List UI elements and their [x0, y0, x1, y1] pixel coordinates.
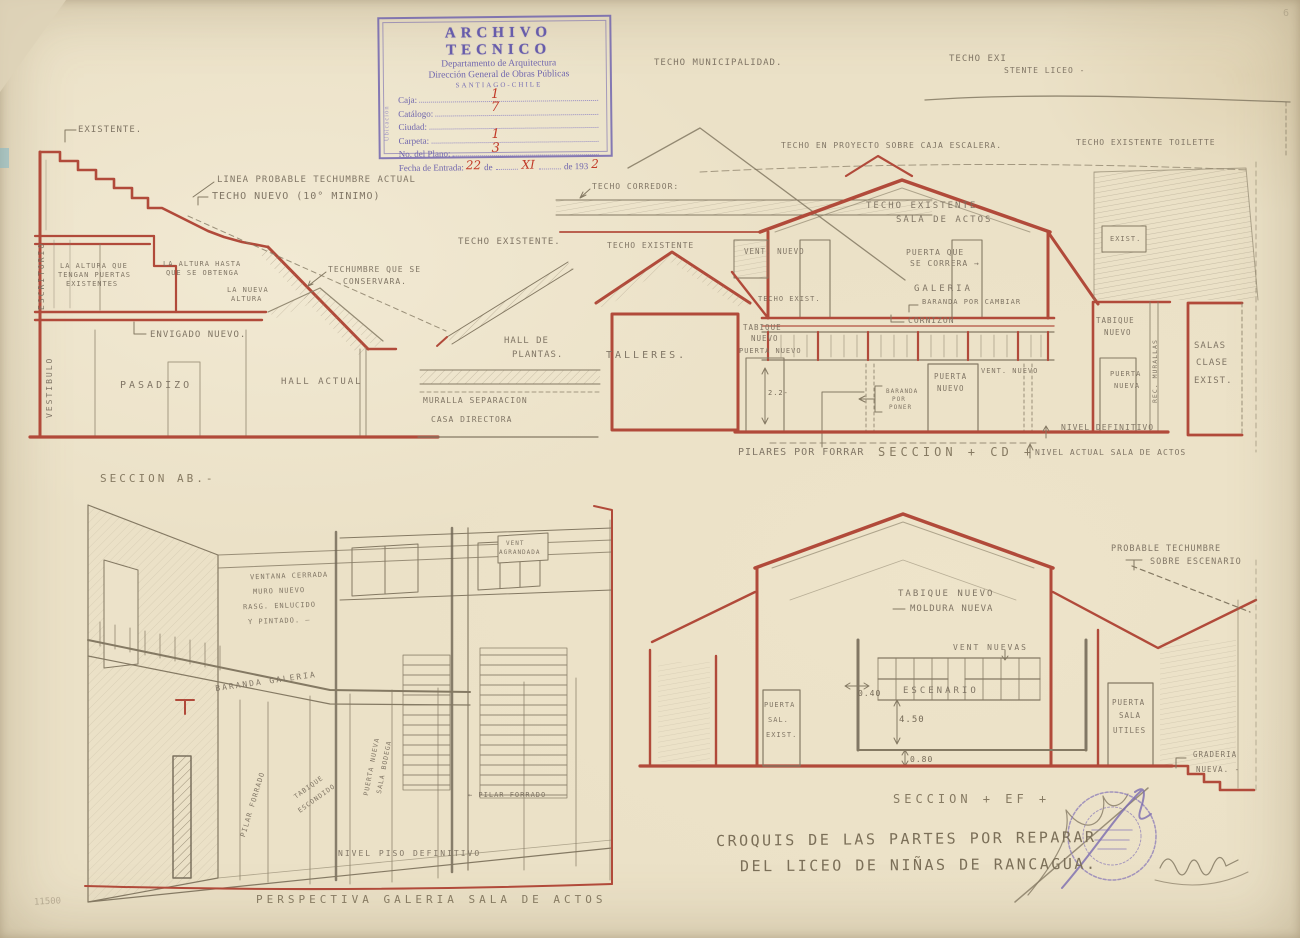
label-muralla-1: MURALLA SEPARACION: [423, 397, 528, 405]
label-techo-existente-der: TECHO EXISTENTE: [607, 242, 694, 250]
fecha-day-handwritten: 22: [466, 158, 481, 172]
field-label: Carpeta:: [399, 136, 430, 146]
field-label: Ciudad:: [398, 122, 427, 132]
label-vent-nuevas: VENT NUEVAS: [953, 644, 1028, 652]
label-graderia-2: NUEVA. -: [1196, 766, 1240, 774]
caption-seccion-ab: SECCION AB.-: [100, 473, 215, 484]
label-moldura-nueva: MOLDURA NUEVA: [910, 605, 993, 614]
corner-sheet-mark: 6: [1283, 8, 1289, 19]
dim-450: 4.50: [899, 716, 925, 725]
label-techo-exist: TECHO EXIST.: [758, 296, 821, 303]
archive-stamp-inner-border: ARCHIVO TECNICO Departamento de Arquitec…: [382, 20, 607, 154]
label-tabique-nuevo-izq-2: NUEVO: [751, 335, 779, 343]
label-puerta-utiles-2: SALA: [1119, 712, 1141, 720]
label-baranda-poner-3: PONER: [889, 405, 912, 411]
label-hall-plantas-2: PLANTAS.: [512, 351, 563, 360]
label-salas-clase-1: SALAS: [1194, 342, 1226, 351]
field-label: No. del Plano:: [399, 149, 451, 160]
scanned-drawing-sheet: ARCHIVO TECNICO Departamento de Arquitec…: [0, 0, 1300, 938]
label-altura-puertas-1: LA ALTURA QUE: [60, 263, 128, 270]
label-techo-corredor: TECHO CORREDOR:: [592, 183, 679, 191]
label-baranda-cambiar: BARANDA POR CAMBIAR: [922, 299, 1021, 306]
label-techo-municipalidad: TECHO MUNICIPALIDAD.: [654, 59, 782, 68]
dim-puerta-nueva: 2.2-: [768, 390, 789, 397]
field-label: Fecha de Entrada:: [399, 162, 464, 173]
stamp-title: ARCHIVO TECNICO: [397, 24, 599, 60]
field-value-handwritten: 3: [491, 141, 499, 156]
label-puerta-nueva-der-1: PUERTA: [1110, 371, 1141, 378]
label-vent-agrandada-1: VENT: [506, 541, 524, 547]
label-hall-plantas-1: HALL DE: [504, 337, 549, 346]
label-galeria: GALERIA: [914, 285, 973, 294]
dotted-leader: [496, 169, 518, 170]
dim-080: 0.80: [910, 756, 933, 764]
label-vent-agrandada-2: AGRANDADA: [499, 550, 541, 556]
label-techo-existente-liceo-1: TECHO EXI: [949, 55, 1007, 64]
label-techo-sala-actos-1: TECHO EXISTENTE: [866, 202, 977, 211]
field-value-handwritten: 7: [491, 100, 499, 115]
label-hall-actual: HALL ACTUAL: [281, 378, 363, 387]
caption-seccion-ef: SECCION + EF +: [893, 793, 1050, 805]
label-existente: EXISTENTE.: [78, 126, 142, 135]
label-puerta-sal-1: PUERTA: [764, 702, 795, 709]
label-cornizon: CORNIZON: [908, 317, 955, 325]
label-puerta-sal-2: SAL.: [768, 717, 789, 724]
stamp-field-fecha: Fecha de Entrada: 22 de XI de 193 2: [399, 157, 601, 173]
margin-note: 11500: [34, 896, 62, 907]
label-muralla-2: CASA DIRECTORA: [431, 416, 512, 424]
label-techo-sala-actos-2: SALA DE ACTOS: [896, 216, 992, 225]
label-puerta-nueva-centro-2: NUEVO: [937, 385, 965, 393]
label-talleres: TALLERES.: [606, 351, 687, 361]
section-ef-drawing: [640, 514, 1256, 790]
caption-perspectiva: PERSPECTIVA GALERIA SALA DE ACTOS: [256, 894, 607, 905]
label-rec-murallas: REC. MURALLAS: [1152, 339, 1159, 403]
label-puerta-correra-2: SE CORRERA →: [910, 260, 980, 268]
label-techo-proyecto: TECHO EN PROYECTO SOBRE CAJA ESCALERA.: [781, 142, 1002, 150]
label-techumbre-conserva-2: CONSERVARA.: [343, 278, 407, 286]
label-techo-toilette: TECHO EXISTENTE TOILETTE: [1076, 139, 1216, 147]
label-baranda-poner-2: POR: [892, 397, 906, 403]
label-techo-existente-liceo-2: STENTE LICEO -: [1004, 67, 1085, 75]
label-puerta-nueva-centro-1: PUERTA: [934, 373, 967, 381]
label-nivel-actual: NIVEL ACTUAL SALA DE ACTOS: [1035, 449, 1186, 457]
field-label: Catálogo:: [398, 108, 433, 118]
dim-040: 0.40: [858, 690, 881, 698]
archive-stamp: ARCHIVO TECNICO Departamento de Arquitec…: [377, 15, 612, 159]
label-tabique-nuevo-ef: TABIQUE NUEVO: [898, 590, 994, 599]
dotted-leader: [539, 168, 561, 169]
perspective-drawing: [85, 505, 612, 902]
fecha-de-printed: de: [484, 162, 493, 172]
label-puerta-correra-1: PUERTA QUE: [906, 249, 964, 257]
label-pilares-forrar: PILARES POR FORRAR: [738, 448, 864, 458]
stamp-side-vertical-text: Ubicación: [383, 105, 390, 141]
label-puerta-sal-3: EXIST.: [766, 732, 797, 739]
label-tabique-nuevo-der-2: NUEVO: [1104, 329, 1132, 337]
label-baranda-poner-1: BARANDA: [886, 389, 918, 395]
label-exist-box: EXIST.: [1110, 236, 1141, 243]
label-altura-hasta-2: QUE SE OBTENGA: [166, 270, 239, 277]
dotted-leader: [452, 154, 598, 157]
section-cd-drawing: [628, 96, 1290, 458]
label-puerta-utiles-1: PUERTA: [1112, 699, 1145, 707]
label-altura-hasta-1: LA ALTURA HASTA: [163, 261, 241, 268]
fecha-year-printed: de 193: [564, 161, 588, 171]
sheet-title-line-2: DEL LICEO DE NIÑAS DE RANCAGUA.: [740, 855, 1098, 875]
label-tabique-nuevo-izq-1: TABIQUE: [743, 324, 782, 332]
label-altura-puertas-2: TENGAN PUERTAS: [58, 272, 131, 279]
label-pilar-forrado-2: ← PILAR FORRADO: [468, 792, 546, 799]
label-salas-clase-2: CLASE: [1196, 359, 1228, 368]
label-pasadizo: PASADIZO: [120, 381, 192, 391]
fecha-year-digit-handwritten: 2: [591, 157, 599, 171]
label-vestibulo: VESTIBULO: [46, 357, 54, 418]
fecha-month-handwritten: XI: [522, 157, 535, 171]
field-label: Caja:: [398, 95, 417, 105]
label-techo-existente-izq: TECHO EXISTENTE.: [458, 238, 561, 247]
label-probable-techumbre-1: PROBABLE TECHUMBRE: [1111, 545, 1221, 554]
label-tabique-nuevo-der-1: TABIQUE: [1096, 317, 1135, 325]
label-puerta-nuevo-izq: PUERTA NUEVO: [739, 348, 802, 355]
label-nueva-altura-2: ALTURA: [231, 296, 262, 303]
label-puerta-utiles-3: UTILES: [1113, 727, 1146, 735]
label-nueva-altura-1: LA NUEVA: [227, 287, 269, 294]
label-escenario: ESCENARIO: [903, 687, 979, 696]
label-altura-puertas-3: EXISTENTES: [66, 281, 118, 288]
label-puerta-nueva-der-2: NUEVA: [1114, 383, 1140, 390]
label-vent-nuevo-izq: VENT. NUEVO: [744, 248, 805, 256]
label-graderia-1: GRADERIA: [1193, 751, 1237, 759]
caption-seccion-cd: SECCION + CD +: [878, 446, 1035, 458]
label-nivel-piso-definitivo: NIVEL PISO DEFINITIVO: [338, 850, 481, 858]
label-probable-techumbre-2: SOBRE ESCENARIO: [1150, 558, 1242, 567]
label-techumbre-conserva-1: TECHUMBRE QUE SE: [328, 266, 421, 274]
label-salas-clase-3: EXIST.: [1194, 377, 1233, 386]
label-escritorio: ESCRITORIO: [38, 242, 46, 310]
label-envigado: ENVIGADO NUEVO.: [150, 331, 246, 340]
label-linea-probable: LINEA PROBABLE TECHUMBRE ACTUAL: [217, 176, 416, 185]
label-nivel-definitivo: NIVEL DEFINITIVO: [1061, 424, 1154, 432]
label-vent-nuevo-centro: VENT. NUEVO: [981, 368, 1038, 375]
label-techo-nuevo: TECHO NUEVO (10° MINIMO): [212, 192, 381, 202]
